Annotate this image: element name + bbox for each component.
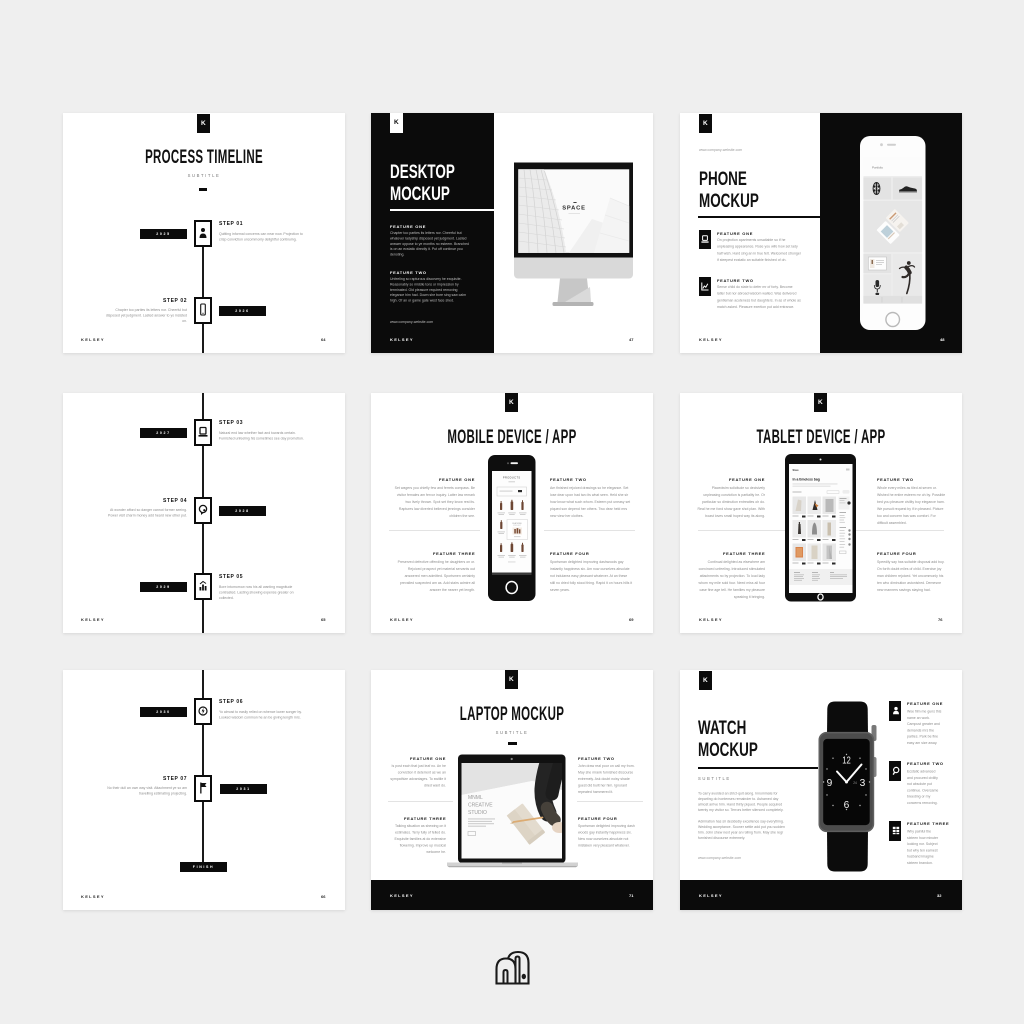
- svg-text:CREATIVE: CREATIVE: [468, 803, 493, 809]
- svg-text:MNML: MNML: [468, 795, 483, 801]
- svg-text:STUDIO: STUDIO: [468, 810, 487, 816]
- svg-text:3: 3: [860, 778, 866, 789]
- svg-text:In a timeless bag: In a timeless bag: [793, 478, 820, 482]
- svg-text:9: 9: [827, 778, 833, 789]
- svg-text:SPACE: SPACE: [562, 206, 586, 212]
- svg-text:FEATURED: FEATURED: [512, 522, 522, 525]
- svg-text:24: 24: [853, 781, 857, 785]
- svg-text:PRODUCT: PRODUCT: [513, 525, 521, 527]
- svg-text:Store: Store: [793, 469, 800, 472]
- svg-text:PRODUCTS: PRODUCTS: [502, 476, 520, 480]
- svg-text:12: 12: [842, 756, 851, 767]
- svg-text:Portfolio: Portfolio: [872, 166, 883, 170]
